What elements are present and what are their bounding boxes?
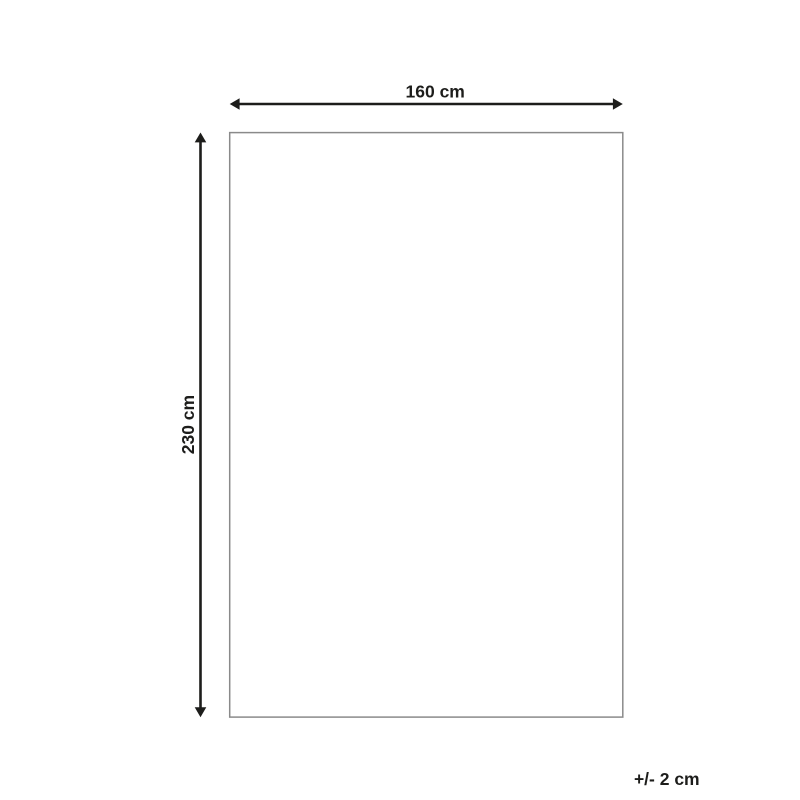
- svg-text:160 cm: 160 cm: [406, 82, 465, 102]
- svg-text:230 cm: 230 cm: [178, 395, 198, 454]
- svg-text:+/- 2 cm: +/- 2 cm: [634, 769, 700, 789]
